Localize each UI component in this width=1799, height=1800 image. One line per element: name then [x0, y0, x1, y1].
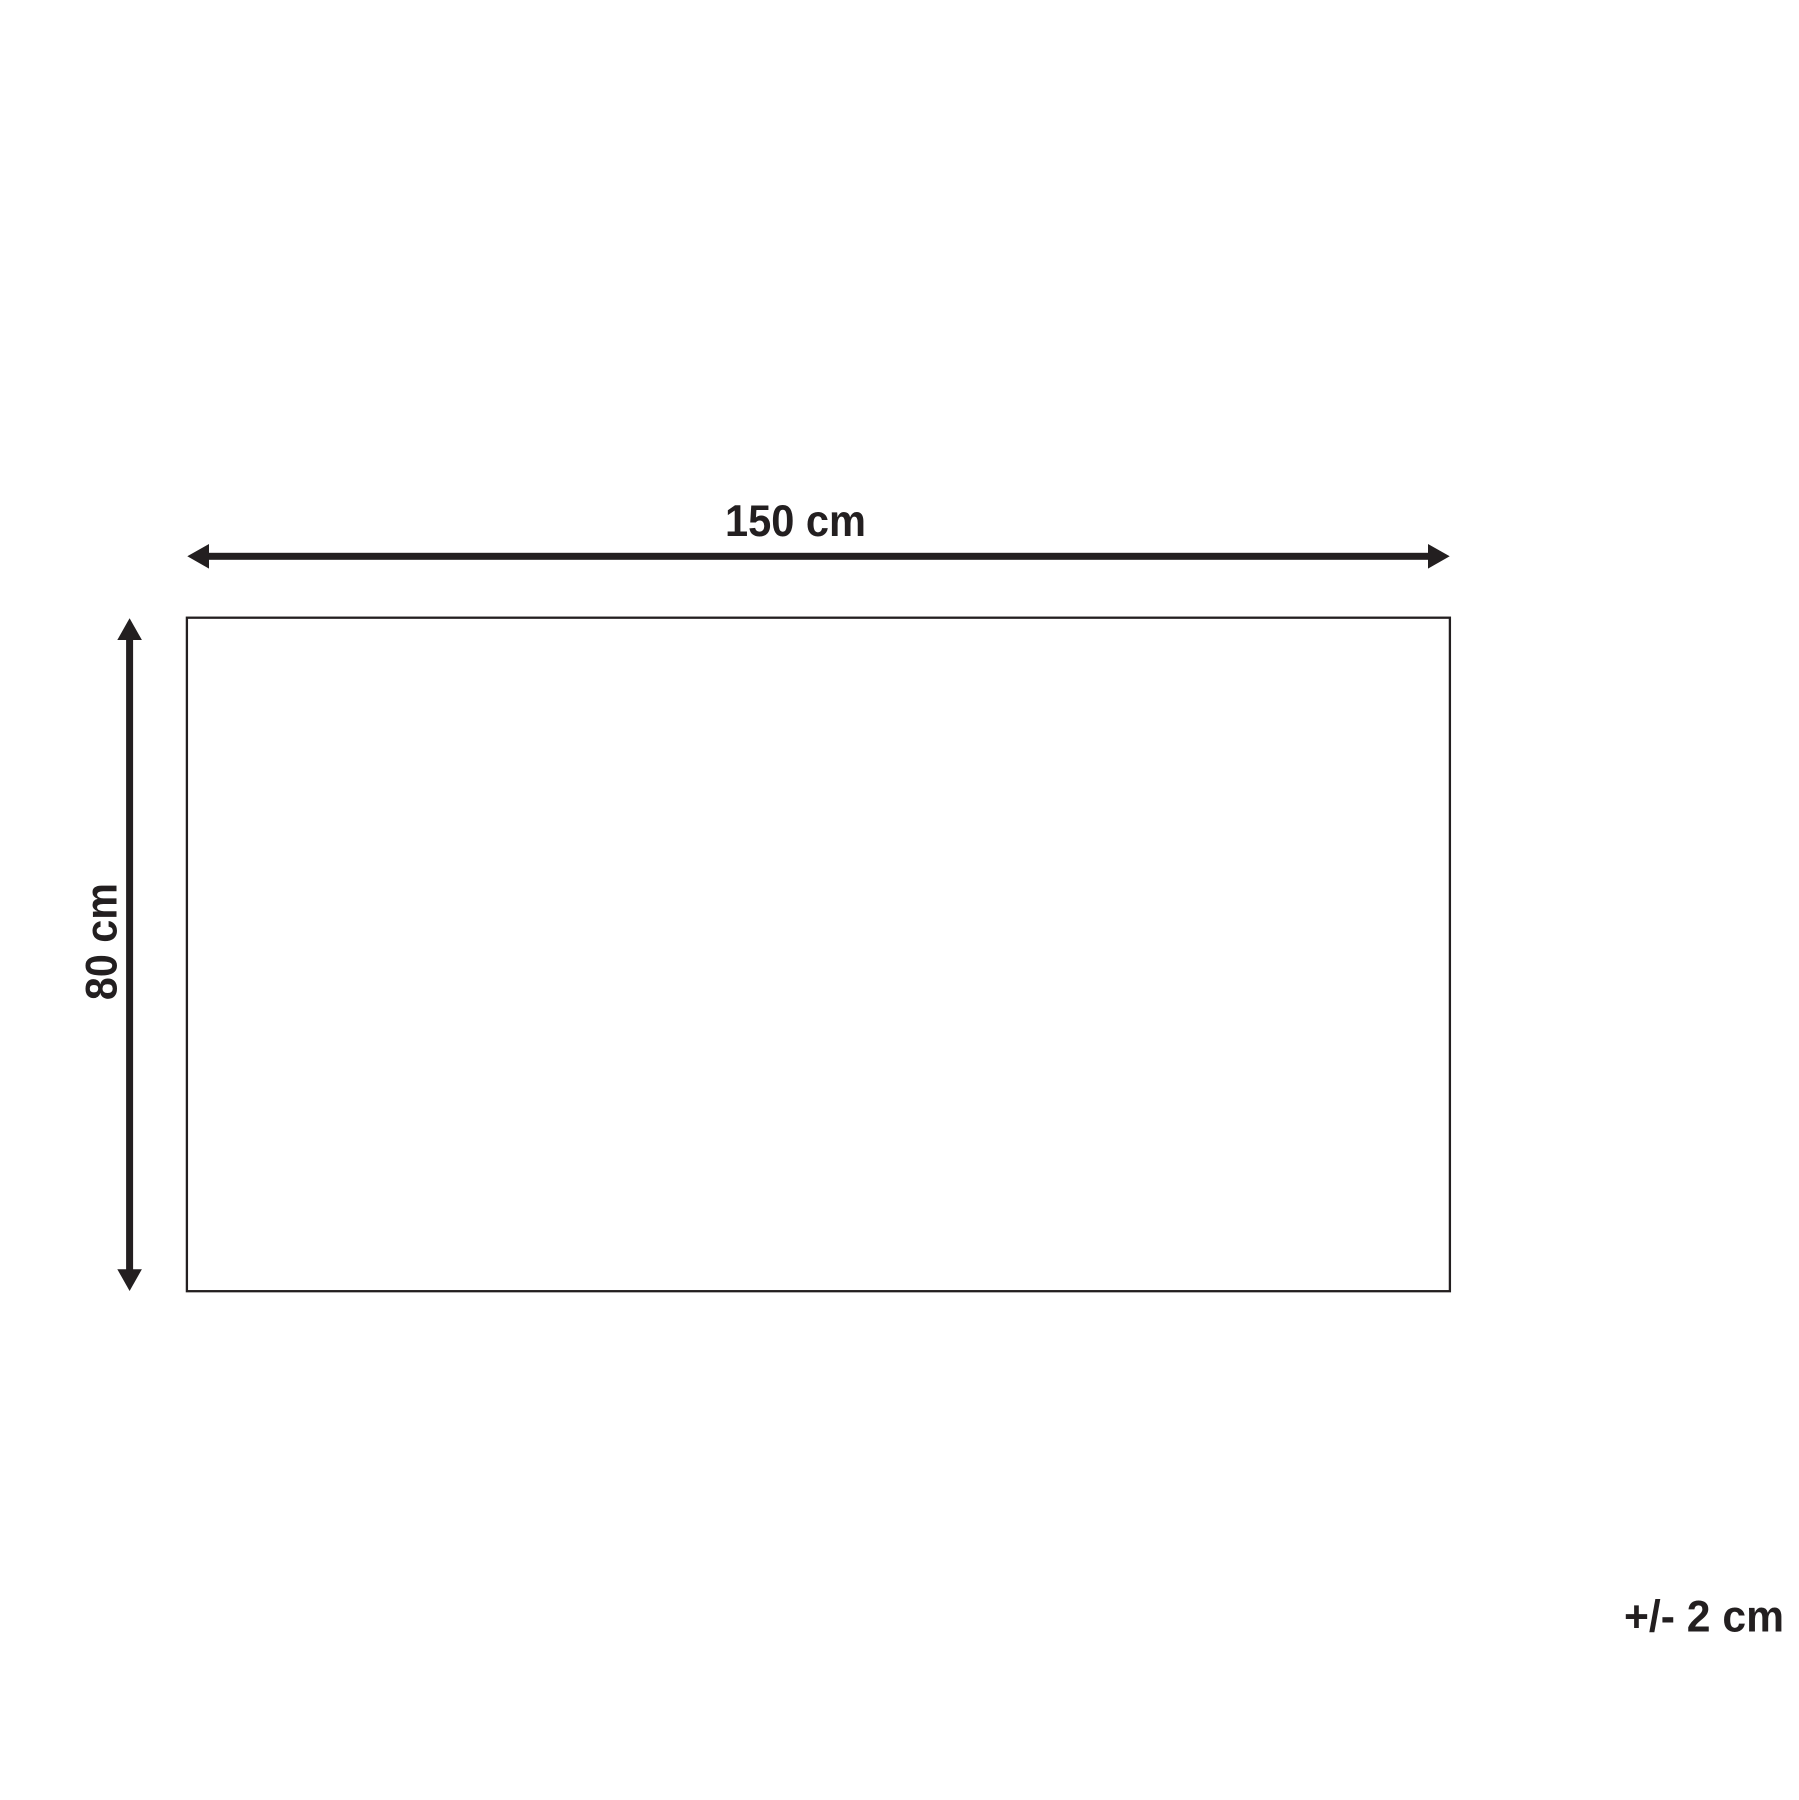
svg-text:+/- 2 cm: +/- 2 cm: [1624, 1591, 1784, 1641]
svg-text:80 cm: 80 cm: [76, 883, 126, 1000]
svg-text:150 cm: 150 cm: [725, 496, 866, 546]
